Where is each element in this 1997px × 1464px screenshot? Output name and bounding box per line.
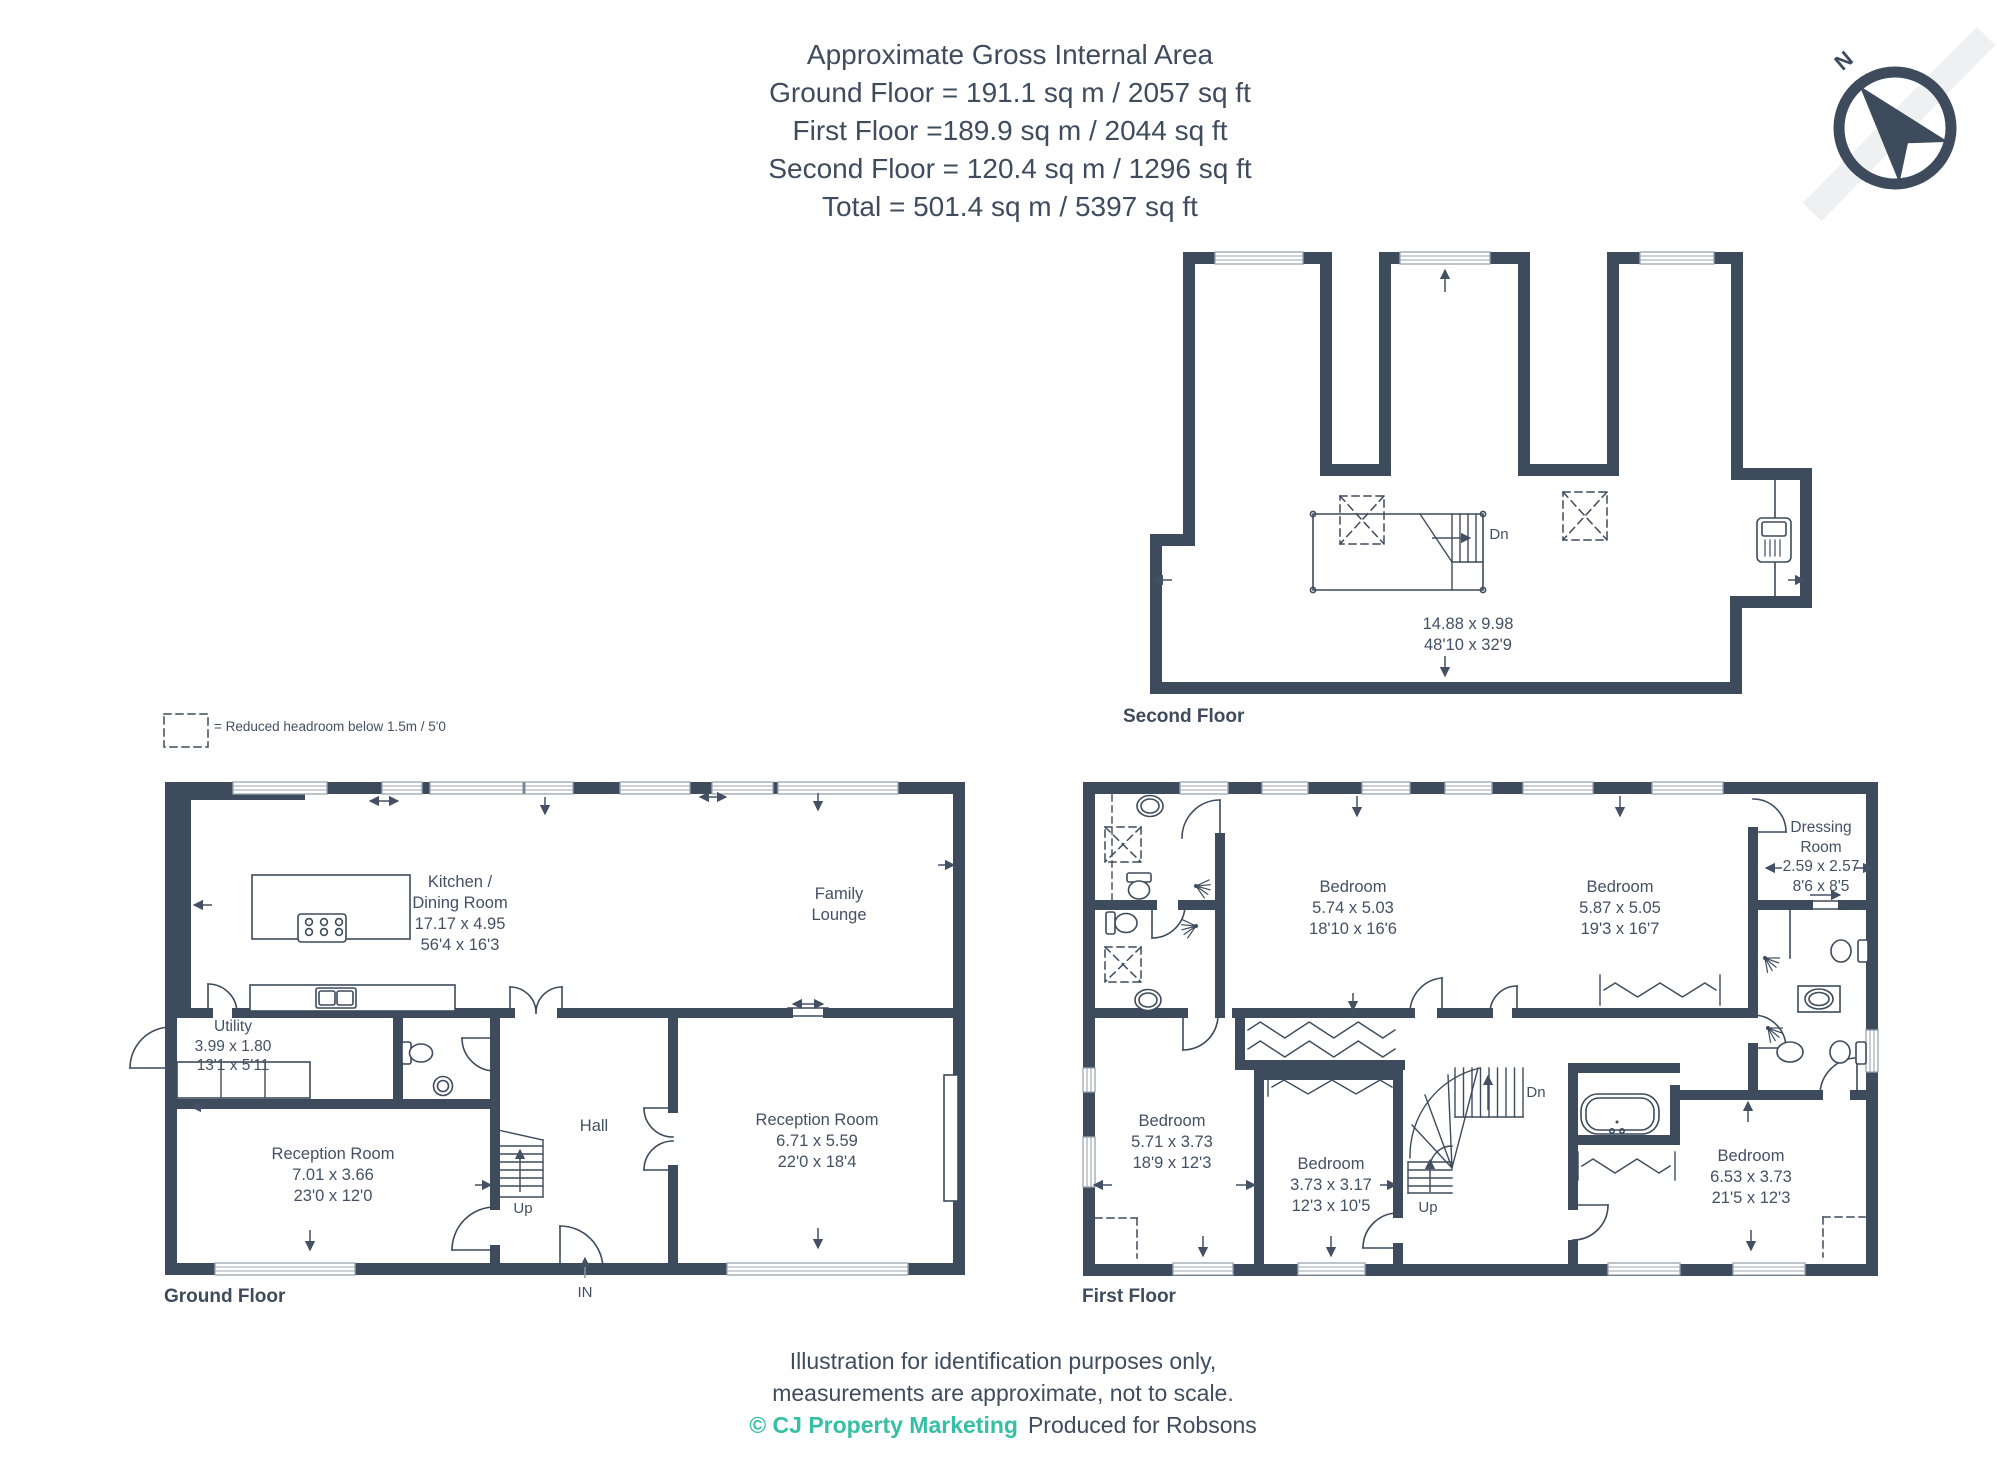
reception-room-2-label: Reception Room 6.71 x 5.59 22'0 x 18'4 <box>756 1110 879 1173</box>
dressing-room-label: Dressing Room 2.59 x 2.57 8'6 x 8'5 <box>1783 818 1860 896</box>
kitchen-dining-label: Kitchen / Dining Room 17.17 x 4.95 56'4 … <box>412 872 507 956</box>
credit-line: © CJ Property MarketingProduced for Robs… <box>749 1409 1257 1441</box>
first-floor-stairs-up: Up <box>1418 1197 1437 1218</box>
reception-room-1-label: Reception Room 7.01 x 3.66 23'0 x 12'0 <box>272 1144 395 1207</box>
family-lounge-label: Family Lounge <box>811 884 866 926</box>
utility-label: Utility 3.99 x 1.80 13'1 x 5'11 <box>195 1017 272 1076</box>
title-line: Total = 501.4 sq m / 5397 sq ft <box>768 188 1251 226</box>
second-floor-label: Second Floor <box>1123 706 1244 728</box>
title-line: Ground Floor = 191.1 sq m / 2057 sq ft <box>768 74 1251 112</box>
bedroom-5-label: Bedroom 6.53 x 3.73 21'5 x 12'3 <box>1710 1146 1792 1209</box>
legend-text: = Reduced headroom below 1.5m / 5'0 <box>214 719 446 734</box>
produced-text: Produced for Robsons <box>1028 1412 1257 1438</box>
bedroom-3-label: Bedroom 5.71 x 3.73 18'9 x 12'3 <box>1131 1111 1213 1174</box>
bedroom-2-label: Bedroom 5.87 x 5.05 19'3 x 16'7 <box>1579 877 1661 940</box>
floorplan-page: Approximate Gross Internal Area Ground F… <box>0 0 1997 1464</box>
title-line: First Floor =189.9 sq m / 2044 sq ft <box>768 112 1251 150</box>
second-floor-dims: 14.88 x 9.98 48'10 x 32'9 <box>1423 614 1514 656</box>
disclaimer-line: Illustration for identification purposes… <box>749 1345 1257 1377</box>
entrance-in-label: IN <box>578 1282 593 1303</box>
ground-floor-stairs-up: Up <box>513 1198 532 1219</box>
footer: Illustration for identification purposes… <box>749 1345 1257 1441</box>
bedroom-1-label: Bedroom 5.74 x 5.03 18'10 x 16'6 <box>1309 877 1397 940</box>
disclaimer-line: measurements are approximate, not to sca… <box>749 1377 1257 1409</box>
title-line: Approximate Gross Internal Area <box>768 36 1251 74</box>
title-block: Approximate Gross Internal Area Ground F… <box>768 36 1251 226</box>
title-line: Second Floor = 120.4 sq m / 1296 sq ft <box>768 150 1251 188</box>
hall-label: Hall <box>580 1116 608 1137</box>
first-floor-label: First Floor <box>1082 1286 1176 1308</box>
first-floor-stairs-dn: Dn <box>1526 1082 1545 1103</box>
second-floor-stairs-dn: Dn <box>1489 524 1508 545</box>
credit-text: © CJ Property Marketing <box>749 1412 1018 1438</box>
bedroom-4-label: Bedroom 3.73 x 3.17 12'3 x 10'5 <box>1290 1154 1372 1217</box>
ground-floor-label: Ground Floor <box>164 1286 285 1308</box>
